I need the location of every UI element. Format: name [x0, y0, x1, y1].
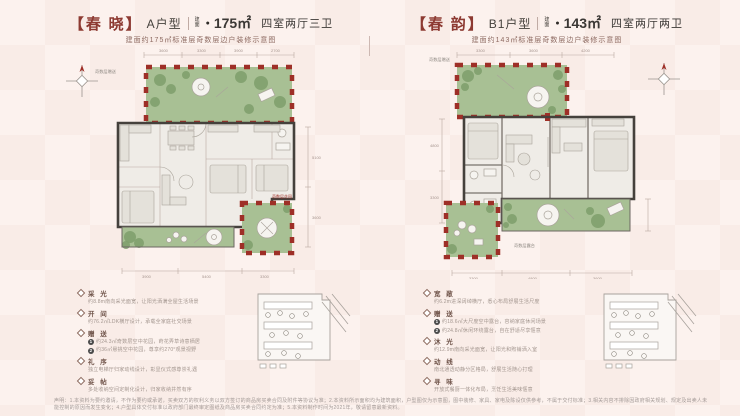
dot-icon: ●: [555, 20, 559, 27]
feature-text: 约12.9m南向采光面宽，让阳光和煦铺洒入室: [434, 347, 537, 354]
feature-line: 2约24.8㎡休闲环绕露台，自在舒适尽享惬意: [434, 328, 594, 335]
area-label: 建面: [195, 18, 202, 29]
feature-title: 赠 送: [434, 308, 455, 318]
feature-text: 独立电梯厅归家动线设计，彰显仪式感尊崇礼遇: [88, 367, 197, 374]
feature-text: 约8.8m南向采光面宽，让阳光洒满全屋生活场景: [88, 299, 199, 306]
compass-icon: [66, 65, 98, 97]
corner-garden-terrace: [242, 203, 292, 253]
feature-item: 礼 序 独立电梯厅归家动线设计，彰显仪式感尊崇礼遇: [78, 356, 248, 374]
feature-text: 南北通透动静分区格局，舒展生活随心打理: [434, 367, 533, 374]
feature-title: 沐 光: [434, 336, 455, 346]
diamond-bullet-icon: [77, 357, 85, 365]
feature-text: 多处收纳空间定制化设计，归家收纳井然有序: [88, 387, 192, 394]
feature-title: 宽 敞: [434, 288, 455, 298]
diamond-bullet-icon: [423, 377, 431, 385]
diamond-bullet-icon: [423, 357, 431, 365]
panel-subtitle: 建面约175㎡标准层奇数层边户装修示意图: [50, 35, 352, 45]
svg-text:4800: 4800: [430, 143, 440, 148]
number-badge: 2: [88, 348, 94, 354]
unit-name: 【春 韵】: [411, 13, 485, 34]
feature-title: 礼 序: [88, 356, 109, 366]
feature-line: 开放式餐厨一体化布局，烹饪生活美味惬意: [434, 387, 594, 394]
sky-garden-terrace: [457, 65, 567, 117]
corner-roof-terrace: [446, 203, 498, 257]
svg-text:3600: 3600: [593, 276, 603, 279]
svg-text:3900: 3900: [234, 48, 244, 53]
panel-b1: 【春 韵】 B1户型 建面 ● 143㎡ 四室两厅两卫 建面约143㎡标准层奇数…: [396, 12, 698, 396]
number-badge: 1: [88, 339, 94, 345]
svg-text:3300: 3300: [197, 48, 207, 53]
diamond-bullet-icon: [423, 289, 431, 297]
feature-line: 多处收纳空间定制化设计，归家收纳井然有序: [88, 387, 248, 394]
svg-text:3300: 3300: [260, 274, 270, 279]
feature-title: 采 光: [88, 288, 109, 298]
panel-bottom: 采 光 约8.8m南向采光面宽，让阳光洒满全屋生活场景 开 间 约76.2㎡LD…: [50, 286, 352, 396]
disclaimer: 声明：1.本资料为要约邀请，不作为要约或承诺，买卖双方的权利义务以双方签订的商品…: [54, 398, 712, 411]
panel-subtitle: 建面约143㎡标准层奇数层边户装修示意图: [396, 35, 698, 45]
svg-text:3600: 3600: [159, 48, 169, 53]
feature-item: 动 线 南北通透动静分区格局，舒展生活随心打理: [424, 356, 594, 374]
feature-line: 独立电梯厅归家动线设计，彰显仪式感尊崇礼遇: [88, 367, 248, 374]
feature-line: 约8.8m南向采光面宽，让阳光洒满全屋生活场景: [88, 299, 248, 306]
header-divider: [537, 17, 538, 30]
feature-title: 动 线: [434, 356, 455, 366]
feature-text: 约36㎡悬挑空中花园，尊享约270°观景视野: [96, 347, 196, 354]
feature-item: 沐 光 约12.9m南向采光面宽，让阳光和煦铺洒入室: [424, 336, 594, 354]
unit-type: B1户型: [489, 15, 532, 32]
feature-text: 约24.3㎡奇数层空中花园，莳花弄草诗意栖居: [96, 339, 200, 346]
panel-header: 【春 晓】 A户型 建面 ● 175㎡ 四室两厅三卫: [50, 12, 352, 34]
feature-line: 南北通透动静分区格局，舒展生活随心打理: [434, 367, 594, 374]
header-divider: [188, 17, 189, 30]
svg-text:3600: 3600: [529, 48, 539, 53]
panel-header: 【春 韵】 B1户型 建面 ● 143㎡ 四室两厅两卫: [396, 12, 698, 34]
svg-text:3300: 3300: [430, 195, 440, 200]
feature-title: 赠 送: [88, 328, 109, 338]
feature-item: 赠 送 1约18.6㎡大尺度空中露台，容纳家庭休闲场景 2约24.8㎡休闲环绕露…: [424, 308, 594, 335]
svg-text:3600: 3600: [312, 215, 322, 220]
diamond-bullet-icon: [77, 309, 85, 317]
diamond-bullet-icon: [423, 309, 431, 317]
unit-rooms: 四室两厅三卫: [261, 15, 333, 31]
feature-text: 约18.6㎡大尺度空中露台，容纳家庭休闲场景: [442, 319, 546, 326]
feature-item: 赠 送 1约24.3㎡奇数层空中花园，莳花弄草诗意栖居 2约36㎡悬挑空中花园，…: [78, 328, 248, 355]
feature-title: 妥 帖: [88, 376, 109, 386]
terrace-label: 奇数层露台: [514, 242, 535, 249]
unit-area: 175㎡: [214, 13, 251, 33]
floor-plan-a-svg: 3600 3300 3900 2700 5100 3600 3900 5400 …: [53, 47, 349, 279]
feature-item: 开 间 约76.2㎡LDK横厅设计，承载全家庭社交场景: [78, 308, 248, 326]
terrace-label: 奇数层花园: [272, 193, 292, 199]
unit-name: 【春 晓】: [69, 13, 143, 34]
gift-label: 奇数层赠送: [429, 56, 451, 63]
feature-list: 宽 敞 约6.2m进深阔绰横厅，悉心布局舒展生活尺度 赠 送 1约18.6㎡大尺…: [424, 286, 594, 396]
feature-title: 寻 味: [434, 376, 455, 386]
feature-line: 约76.2㎡LDK横厅设计，承载全家庭社交场景: [88, 319, 248, 326]
diamond-bullet-icon: [77, 289, 85, 297]
feature-line: 约6.2m进深阔绰横厅，悉心布局舒展生活尺度: [434, 299, 594, 306]
unit-rooms: 四室两厅两卫: [611, 15, 683, 31]
sky-garden-terrace: [146, 67, 292, 123]
feature-title: 开 间: [88, 308, 109, 318]
compass-icon: [648, 63, 680, 95]
panel-bottom: 宽 敞 约6.2m进深阔绰横厅，悉心布局舒展生活尺度 赠 送 1约18.6㎡大尺…: [396, 286, 698, 396]
feature-text: 开放式餐厨一体化布局，烹饪生活美味惬意: [434, 387, 533, 394]
feature-line: 2约36㎡悬挑空中花园，尊享约270°观景视野: [88, 347, 248, 354]
svg-text:5100: 5100: [312, 155, 322, 160]
feature-text: 约24.8㎡休闲环绕露台，自在舒适尽享惬意: [442, 328, 541, 335]
feature-line: 1约18.6㎡大尺度空中露台，容纳家庭休闲场景: [434, 319, 594, 326]
feature-item: 妥 帖 多处收纳空间定制化设计，归家收纳井然有序: [78, 376, 248, 394]
svg-text:3900: 3900: [142, 274, 152, 279]
panel-a: 【春 晓】 A户型 建面 ● 175㎡ 四室两厅三卫 建面约175㎡标准层奇数层…: [50, 12, 352, 396]
feature-text: 约6.2m进深阔绰横厅，悉心布局舒展生活尺度: [434, 299, 540, 306]
svg-text:4200: 4200: [581, 48, 591, 53]
number-badge: 2: [434, 328, 440, 334]
feature-list: 采 光 约8.8m南向采光面宽，让阳光洒满全屋生活场景 开 间 约76.2㎡LD…: [78, 286, 248, 396]
svg-text:2700: 2700: [271, 48, 281, 53]
unit-type: A户型: [147, 15, 182, 32]
feature-item: 寻 味 开放式餐厨一体化布局，烹饪生活美味惬意: [424, 376, 594, 394]
feature-item: 采 光 约8.8m南向采光面宽，让阳光洒满全屋生活场景: [78, 288, 248, 306]
svg-text:5400: 5400: [202, 274, 212, 279]
area-label: 建面: [544, 18, 551, 29]
floor-plan-a: 3600 3300 3900 2700 5100 3600 3900 5400 …: [50, 47, 352, 284]
svg-text:3300: 3300: [469, 276, 479, 279]
site-plan-map: [598, 290, 698, 396]
unit-area: 143㎡: [564, 13, 601, 33]
south-balcony: [122, 227, 234, 249]
feature-item: 宽 敞 约6.2m进深阔绰横厅，悉心布局舒展生活尺度: [424, 288, 594, 306]
diamond-bullet-icon: [77, 328, 85, 336]
feature-line: 1约24.3㎡奇数层空中花园，莳花弄草诗意栖居: [88, 339, 248, 346]
feature-line: 约12.9m南向采光面宽，让阳光和煦铺洒入室: [434, 347, 594, 354]
south-balcony: [502, 199, 630, 231]
dot-icon: ●: [206, 20, 210, 27]
feature-text: 约76.2㎡LDK横厅设计，承载全家庭社交场景: [88, 319, 192, 326]
panel-divider: [369, 36, 370, 56]
floor-plan-b1-svg: 3300 3600 4200 4800 3300 3300 4800 3600 …: [399, 47, 695, 279]
svg-text:4800: 4800: [528, 276, 538, 279]
site-plan-map: [252, 290, 352, 396]
floor-plan-b1: 3300 3600 4200 4800 3300 3300 4800 3600 …: [396, 47, 698, 284]
gift-label: 奇数层赠送: [95, 68, 117, 75]
number-badge: 1: [434, 319, 440, 325]
diamond-bullet-icon: [423, 337, 431, 345]
diamond-bullet-icon: [77, 377, 85, 385]
svg-text:3300: 3300: [476, 48, 486, 53]
